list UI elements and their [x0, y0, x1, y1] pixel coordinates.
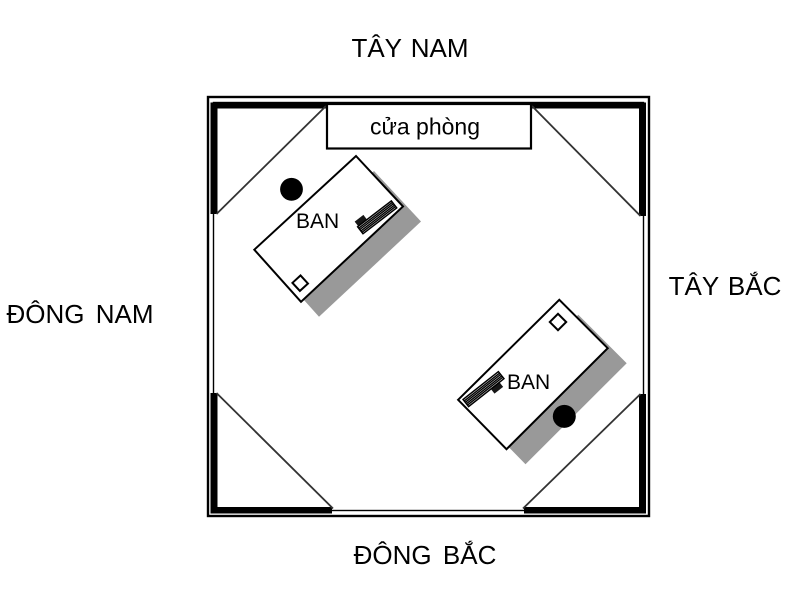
svg-text:BAN: BAN — [296, 210, 339, 233]
svg-text:cửa phòng: cửa phòng — [370, 114, 480, 140]
svg-text:BAN: BAN — [507, 371, 550, 394]
svg-text:TÂY NAM: TÂY NAM — [351, 33, 468, 63]
svg-text:ĐÔNG NAM: ĐÔNG NAM — [7, 299, 154, 329]
svg-text:TÂY BẮC: TÂY BẮC — [669, 271, 782, 301]
svg-text:ĐÔNG BẮC: ĐÔNG BẮC — [354, 540, 497, 570]
